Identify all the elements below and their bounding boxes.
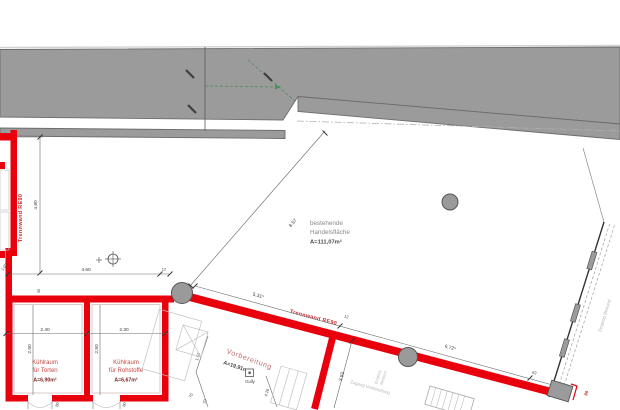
mullion <box>570 304 580 323</box>
dim-12b: 12 <box>344 314 350 320</box>
trennwand-diagonal <box>184 296 557 394</box>
table-hatch <box>454 394 459 410</box>
wall-label-trennwand-left: Trennwand RE90 <box>18 194 24 243</box>
gully-icon-dot <box>249 372 251 375</box>
dimension-line-857 <box>190 131 325 286</box>
table-hatch <box>448 393 453 410</box>
dim-80a: 80 <box>54 401 60 407</box>
table-hatch <box>436 389 441 407</box>
room-boundary-right <box>583 148 604 222</box>
wall-stub-edge-2 <box>0 251 5 258</box>
furniture-left-edge-1 <box>0 170 9 210</box>
dim-90: 90 <box>583 390 589 397</box>
wall-left-jog <box>6 248 18 256</box>
table-hatch <box>431 388 436 406</box>
wall-down-from-diagonal <box>315 336 334 409</box>
dim-230: 2.30 <box>119 327 129 333</box>
furniture-hatched-table <box>425 386 474 410</box>
table-hatch <box>442 391 447 409</box>
handelsflaeche: bestehende Handelsfläche A=111,07m² 8.57 <box>189 131 605 289</box>
wall-horizontal <box>6 296 175 303</box>
room-area-handelsflaeche: A=111,07m² <box>310 239 342 246</box>
dim-35: 35 <box>36 288 41 293</box>
coolroom-wall-left <box>6 302 13 401</box>
room-label-handelsflaeche-2: Handelsfläche <box>310 229 350 236</box>
dim-393: 3.93 <box>338 371 346 382</box>
dim-tick <box>338 324 343 329</box>
shelf-divider <box>279 368 289 405</box>
dim-480: 4.80 <box>33 200 39 210</box>
label-eingang-bestand: Eingang Bestand <box>597 298 612 332</box>
room-label-rohstoffe-1: Kühlraum <box>113 360 139 366</box>
coolroom-wall-bottom-2 <box>52 395 93 402</box>
column <box>172 283 193 304</box>
furniture-table <box>142 309 201 381</box>
wall-stub-top-left <box>0 133 11 141</box>
coolroom-wall-right <box>162 302 169 401</box>
furniture-box-diag2 <box>176 325 208 357</box>
dim-857: 8.57 <box>288 218 299 229</box>
dim-70b: 70 <box>188 391 195 398</box>
coolroom-wall-partition <box>84 302 90 401</box>
pier <box>547 380 573 402</box>
door-swing-arc <box>93 402 120 408</box>
wall-left-vertical-upper <box>11 130 18 255</box>
existing-building <box>0 46 620 140</box>
room-label-torten-1: Kühlraum <box>32 360 58 366</box>
label-zugang: Zugang Vorbereitung <box>350 379 391 395</box>
storefront-dashed-1 <box>555 224 610 399</box>
dim-290b: 2.90 <box>94 344 100 354</box>
column <box>442 194 458 210</box>
dimensions-upper-left: 4.80 4.60 12 1.02 <box>0 135 173 277</box>
room-area-torten: A=6,90m² <box>33 378 56 384</box>
furniture-box-x <box>176 325 208 357</box>
furniture-left-edge-2 <box>0 212 9 250</box>
dim-531: 5.31⁵ <box>252 292 265 301</box>
mullion <box>559 339 569 358</box>
dim-240: 2.40 <box>40 327 50 333</box>
dim-12a: 12 <box>162 267 167 272</box>
dim-426: 4.26 <box>263 387 270 397</box>
dim-290a: 2.90 <box>27 344 33 354</box>
gully-label: Gully <box>245 379 255 384</box>
room-label-rohstoffe-2: für Rohstoffe <box>109 368 144 374</box>
shelf-divider <box>288 371 298 408</box>
dim-460: 4.60 <box>81 267 91 273</box>
coolroom-wall-bottom-3 <box>120 395 169 402</box>
room-area-rohstoffe: A=6,67m² <box>114 378 137 384</box>
room-label-handelsflaeche-1: bestehende <box>310 220 343 227</box>
room-label-torten-2: für Torten <box>32 368 57 374</box>
coolroom-wall-bottom-1 <box>6 395 29 402</box>
storefront: 90 Eingang Bestand <box>547 222 614 402</box>
floor-plan: bestehende Handelsfläche A=111,07m² 8.57… <box>0 0 620 410</box>
door-swing-arc <box>28 402 52 408</box>
column <box>399 348 418 367</box>
wall-stub-edge-1 <box>0 162 5 169</box>
table-outline <box>425 386 474 410</box>
mullion <box>587 251 597 270</box>
table-hatch <box>459 396 464 410</box>
dim-tick <box>193 284 198 289</box>
dim-672: 6.72⁵ <box>444 344 457 353</box>
dim-63: 63 <box>532 370 538 376</box>
dim-80b: 80 <box>121 401 127 407</box>
vorbereitung: Vorbereitung A=19,91m² Gully 1.52 70 4.2… <box>0 170 474 410</box>
kuehlraeume: Kühlraum für Torten A=6,90m² Kühlraum fü… <box>4 288 195 409</box>
